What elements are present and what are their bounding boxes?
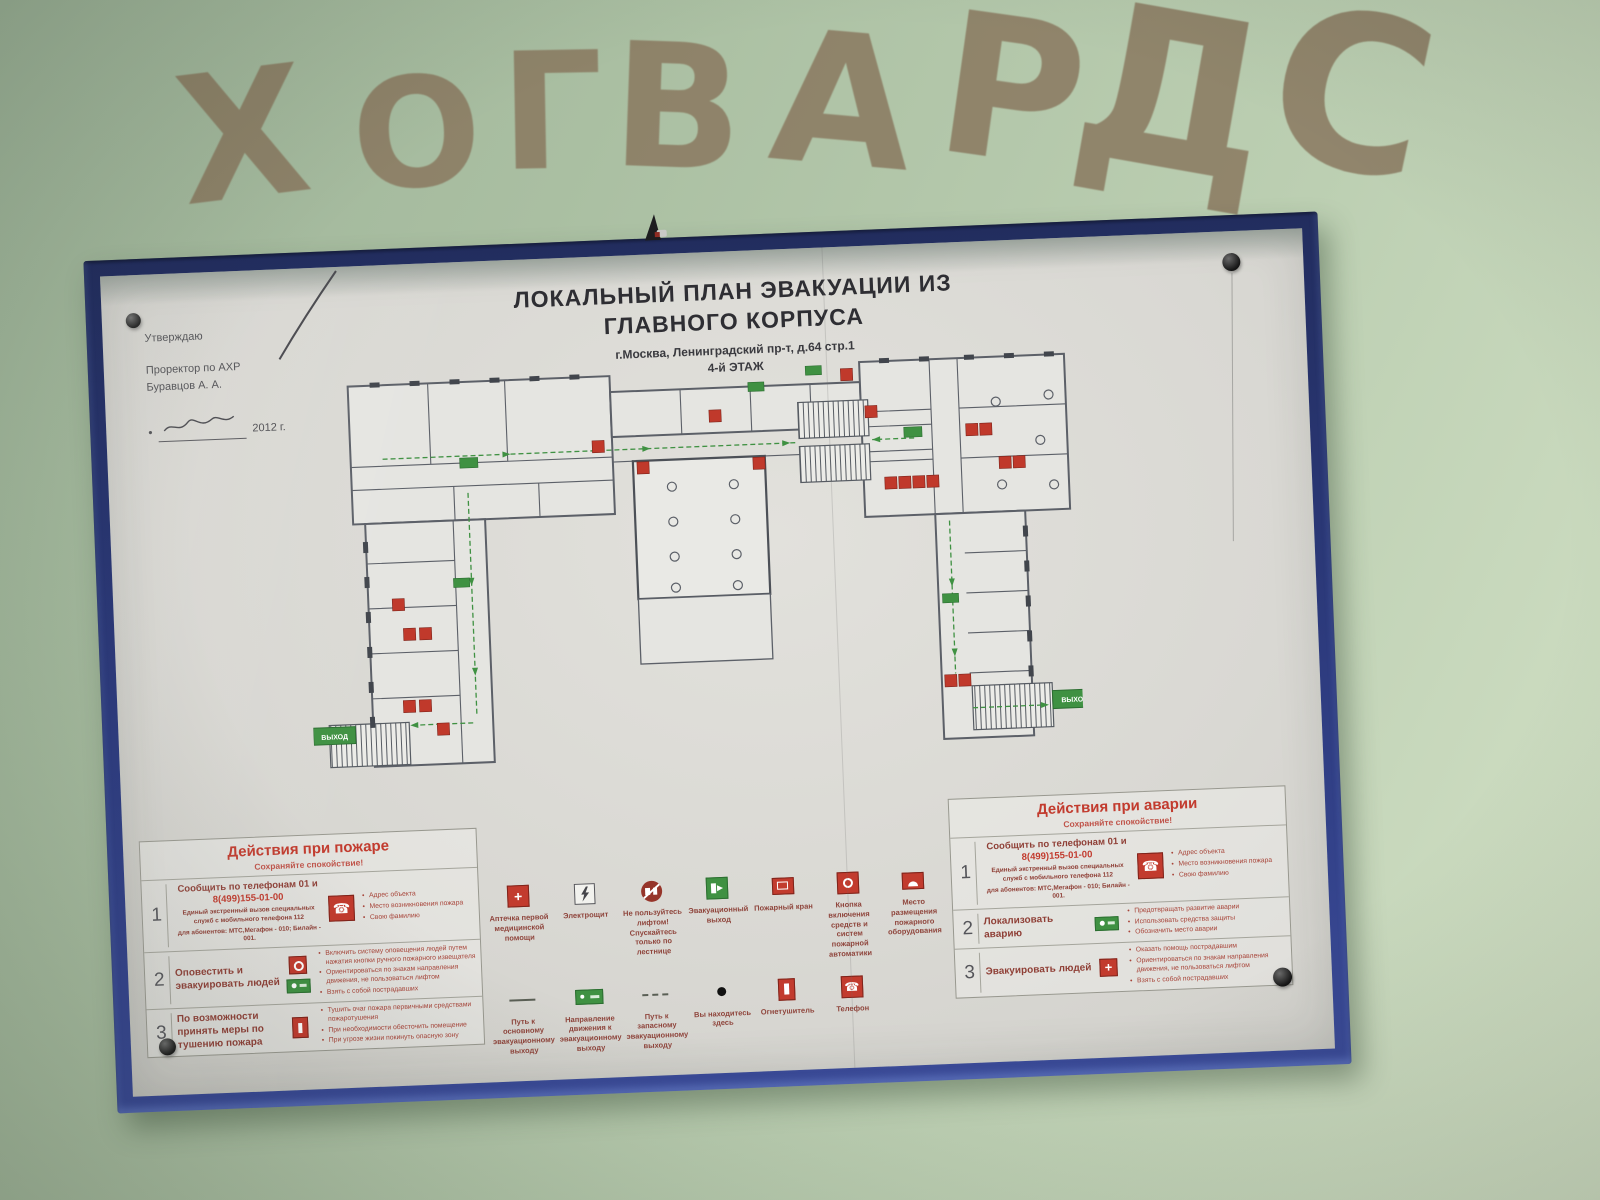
fire-hydrant-icon — [771, 877, 794, 895]
graffiti-letter: В — [609, 20, 746, 196]
approval-dot: • — [148, 423, 153, 442]
bullet: Свою фамилию — [363, 910, 475, 923]
graffiti-letter: Х — [168, 41, 318, 232]
no-lift-icon — [641, 880, 663, 902]
exit-direction-icon — [575, 989, 604, 1005]
extinguisher-icon — [778, 978, 796, 1001]
legend-label: Электрощит — [555, 909, 617, 921]
legend-label: Вы находитесь здесь — [692, 1007, 753, 1029]
photo-scene: Х О Г В А Р Д С Утверждаю Проректор по А… — [0, 0, 1600, 1200]
exit-sign-icon — [286, 979, 311, 994]
call-note: для абонентов: МТС,Мегафон - 010; Билайн… — [982, 881, 1135, 904]
electric-panel-icon — [574, 883, 596, 905]
poster-frame: Утверждаю Проректор по АХР Буравцов А. А… — [83, 212, 1351, 1114]
first-aid-icon: + — [507, 885, 530, 908]
legend-label: Огнетушитель — [757, 1005, 817, 1017]
legend-label: Аптечка первой медицинской помощи — [488, 912, 551, 944]
plan-legend: + Аптечка первой медицинской помощи Элек… — [487, 867, 950, 1057]
reserve-route-line-icon — [643, 993, 669, 996]
corner-magnet — [1222, 253, 1241, 272]
row-number: 2 — [957, 914, 979, 945]
legend-label: Путь к запасному эвакуационному выходу — [626, 1010, 689, 1051]
you-are-here-icon — [717, 987, 726, 996]
corner-magnet — [126, 313, 142, 329]
floor-plan-drawing: ВЫХОД ВЫХОД — [299, 344, 1086, 823]
row-number: 1 — [145, 884, 169, 948]
first-aid-icon: + — [1099, 958, 1118, 977]
exit-label-left: ВЫХОД — [321, 734, 348, 742]
bullet: Свою фамилию — [1172, 867, 1284, 880]
emergency-exit-icon — [706, 877, 729, 900]
legend-label: Не пользуйтесь лифтом! Спускайтесь тольк… — [621, 907, 685, 958]
fire-panel-row-1: 1 Сообщить по телефонам 01 и 8(499)155-0… — [141, 867, 480, 952]
floor-plan: ВЫХОД ВЫХОД — [299, 344, 1086, 823]
accident-actions-panel: Действия при аварии Сохраняйте спокойств… — [948, 785, 1294, 998]
approval-date: 2012 г. — [252, 420, 286, 439]
phone-icon: ☎ — [1137, 853, 1164, 880]
row-number: 2 — [148, 956, 171, 1005]
row-number: 3 — [959, 953, 982, 993]
legend-label: Место размещения пожарного оборудования — [883, 896, 945, 937]
fire-alarm-button-icon — [288, 956, 307, 975]
evacuation-poster: Утверждаю Проректор по АХР Буравцов А. А… — [100, 228, 1335, 1097]
phone-icon: ☎ — [328, 895, 355, 922]
legend-label: Пожарный кран — [753, 901, 813, 913]
fire-equipment-icon — [901, 871, 924, 889]
row-action: Локализовать аварию — [983, 909, 1090, 944]
signature-line — [158, 422, 247, 443]
accident-panel-row-1: 1 Сообщить по телефонам 01 и 8(499)155-0… — [950, 824, 1289, 909]
legend-label: Путь к основному эвакуационному выходу — [492, 1015, 555, 1056]
graffiti-letter: О — [348, 55, 485, 214]
row-action: По возможности принять меры по тушению п… — [177, 1009, 284, 1053]
fire-actions-panel: Действия при пожаре Сохраняйте спокойств… — [139, 828, 485, 1059]
row-action: Эвакуировать людей — [985, 949, 1092, 993]
call-note: для абонентов: МТС,Мегафон - 010; Билайн… — [173, 923, 326, 946]
exit-sign-icon — [1095, 916, 1120, 931]
legend-label: Эвакуационный выход — [688, 904, 749, 926]
main-route-line-icon — [509, 998, 535, 1001]
row-number: 1 — [954, 842, 978, 906]
frame-top-object — [638, 211, 673, 240]
row-action: Оповестить и эвакуировать людей — [174, 952, 282, 1004]
hanging-thread — [1231, 273, 1233, 541]
graffiti-letter: А — [764, 4, 920, 198]
exit-label-right: ВЫХОД — [1061, 696, 1086, 704]
signature-icon — [160, 408, 241, 437]
extinguisher-icon — [292, 1017, 309, 1039]
legend-label: Направление движения к эвакуационному вы… — [559, 1013, 622, 1054]
graffiti-letter: Г — [499, 31, 605, 195]
